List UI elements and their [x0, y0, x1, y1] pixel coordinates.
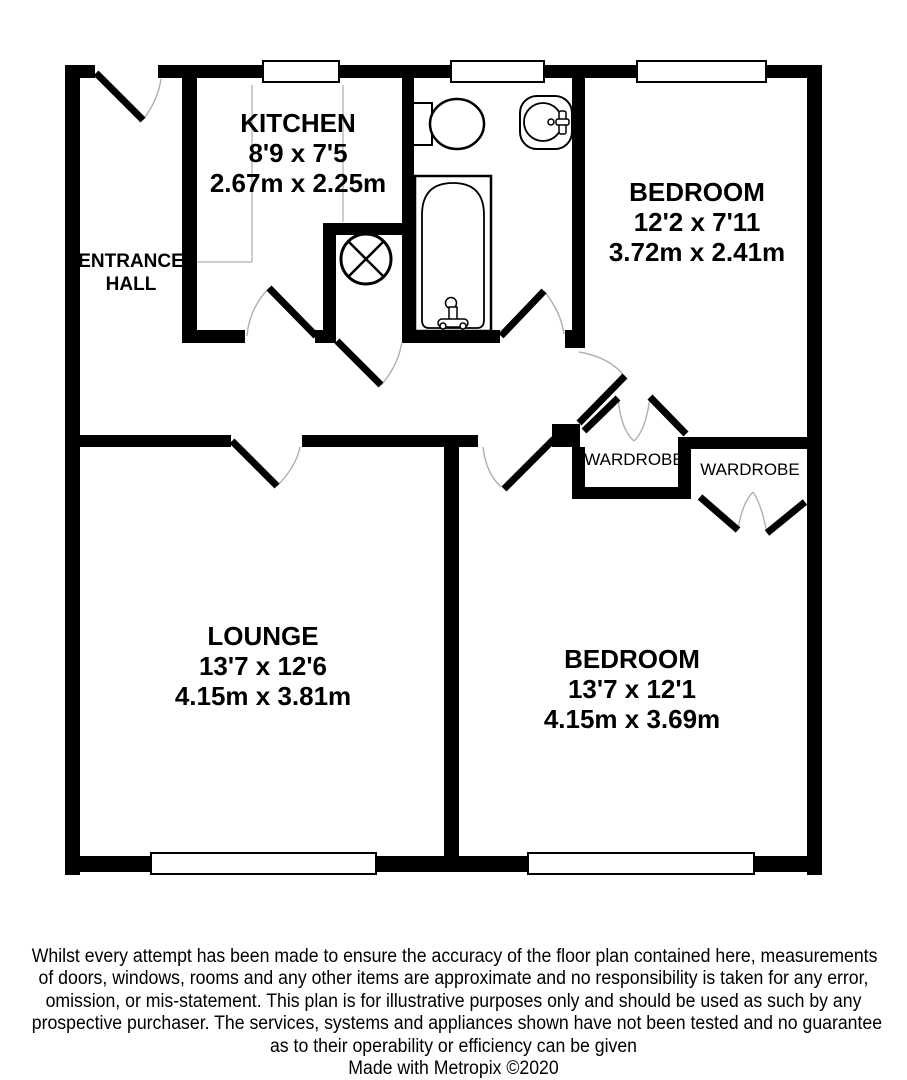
entrance-hall-label: ENTRANCE HALL [46, 250, 216, 296]
room-size-metric: 4.15m x 3.81m [123, 681, 403, 711]
room-size-imperial: 12'2 x 7'11 [557, 207, 837, 237]
room-name: KITCHEN [158, 108, 438, 138]
lounge-label: LOUNGE 13'7 x 12'6 4.15m x 3.81m [123, 621, 403, 711]
bedroom2-label: BEDROOM 13'7 x 12'1 4.15m x 3.69m [492, 644, 772, 734]
wall [552, 424, 580, 447]
door-swing-arc [618, 398, 634, 441]
wall [302, 435, 478, 447]
wardrobe-left-bifold-leaf [650, 397, 686, 434]
toilet-bowl [430, 99, 484, 149]
wall [444, 447, 459, 856]
door-swing-arc [634, 397, 650, 441]
wall [65, 65, 80, 875]
wall [754, 856, 822, 872]
wall [182, 330, 245, 343]
wall [544, 65, 637, 78]
door-swing-arc [277, 447, 300, 486]
room-size-imperial: 8'9 x 7'5 [158, 138, 438, 168]
door-swing-arc [381, 342, 402, 385]
window [528, 853, 754, 874]
sink-tap [556, 119, 569, 125]
door-swing-arc [738, 492, 753, 530]
kitchen-door-leaf [269, 288, 316, 336]
disclaimer-line: Whilst every attempt has been made to en… [32, 946, 876, 968]
wardrobe-right-bifold-leaf [700, 497, 738, 530]
floorplan-page: ENTRANCE HALL KITCHEN 8'9 x 7'5 2.67m x … [0, 0, 907, 1080]
kitchen-label: KITCHEN 8'9 x 7'5 2.67m x 2.25m [158, 108, 438, 198]
room-name: BEDROOM [557, 177, 837, 207]
disclaimer-line: as to their operability or efficiency ca… [32, 1036, 876, 1058]
wall [339, 65, 451, 78]
window [637, 61, 766, 82]
wardrobe-right-bifold-leaf [767, 502, 805, 533]
disclaimer-text: Whilst every attempt has been made to en… [0, 946, 907, 1080]
wall [572, 487, 691, 499]
door-swing-arc [544, 291, 564, 334]
disclaimer-line: of doors, windows, rooms and any other i… [32, 968, 876, 990]
disclaimer-line: prospective purchaser. The services, sys… [32, 1013, 876, 1035]
room-name: LOUNGE [123, 621, 403, 651]
metropix-credit: Made with Metropix ©2020 [32, 1058, 876, 1080]
window [151, 853, 376, 874]
room-size-metric: 4.15m x 3.69m [492, 704, 772, 734]
window [451, 61, 544, 82]
wall [678, 437, 807, 449]
wall [80, 435, 231, 447]
entrance-door-leaf [96, 73, 143, 120]
bath-tap-knob [460, 323, 466, 329]
room-size-metric: 2.67m x 2.25m [158, 168, 438, 198]
extractor-fan-icon [341, 234, 391, 284]
door-swing-arc [483, 447, 501, 487]
sink-plug [548, 119, 554, 125]
wall [323, 235, 336, 342]
door-swing-arc [579, 352, 625, 377]
wall [158, 65, 263, 78]
disclaimer-line: omission, or mis-statement. This plan is… [32, 991, 876, 1013]
bathroom-door-leaf [501, 291, 544, 336]
bath-icon [415, 176, 491, 331]
wardrobe-right-label: WARDROBE [680, 460, 820, 479]
wall [65, 856, 151, 872]
bath-tap-knob [440, 323, 446, 329]
bedroom1-label: BEDROOM 12'2 x 7'11 3.72m x 2.41m [557, 177, 837, 267]
sink-icon [520, 96, 572, 149]
bedroom2-door-leaf [504, 439, 554, 489]
room-name: BEDROOM [492, 644, 772, 674]
window [263, 61, 339, 82]
door-swing-arc [247, 288, 269, 336]
lounge-door-leaf [232, 441, 277, 486]
wall [376, 856, 528, 872]
room-size-metric: 3.72m x 2.41m [557, 237, 837, 267]
room-name-line: ENTRANCE [46, 250, 216, 273]
room-size-imperial: 13'7 x 12'1 [492, 674, 772, 704]
hall-door-leaf [337, 341, 381, 385]
room-size-imperial: 13'7 x 12'6 [123, 651, 403, 681]
door-swing-arc [753, 492, 767, 533]
room-name-line: HALL [46, 273, 216, 296]
